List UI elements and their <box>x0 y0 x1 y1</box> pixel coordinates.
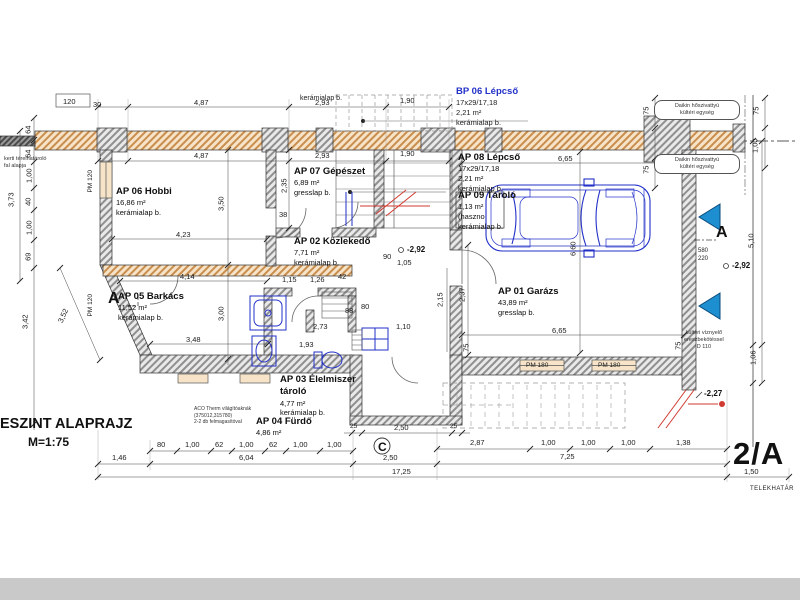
dim-label: 3,00 <box>218 306 226 321</box>
section-arrow-icon <box>699 293 720 319</box>
level-value: -2,27 <box>704 389 722 398</box>
dim-label: 1,15 <box>282 276 297 284</box>
dim-label: 2,50 <box>394 424 409 432</box>
dim-label: 1,00 <box>293 441 308 449</box>
room-name: AP 03 Élelmiszer tároló <box>280 374 370 399</box>
room-area: 2,21 m² <box>458 174 520 184</box>
drain-dot <box>719 401 725 407</box>
room-floor: kerámialap b. <box>118 313 184 323</box>
room-label-ap02: AP 02 Közlekedő 7,71 m² kerámialap b. <box>294 236 370 268</box>
drawing-title: ESZINT ALAPRAJZ <box>0 416 132 432</box>
dim-label: 1,00 <box>185 441 200 449</box>
dim-label: 80 <box>157 441 165 449</box>
room-label-ap09: AP 09 Tároló 1,13 m² (haszno kerámialap … <box>458 190 516 232</box>
note-daikin-1: Daikin hőszivattyú kültéri egység <box>654 100 740 120</box>
section-letter-a-left: A <box>108 290 120 308</box>
stair-bp06 <box>336 95 452 131</box>
dim-label: 3,42 <box>22 314 30 329</box>
dim-label: 75 <box>752 107 760 115</box>
room-area: 43,89 m² <box>498 298 559 308</box>
dim-label: 1,38 <box>676 439 691 447</box>
window-marker: PM 180 <box>526 363 548 370</box>
bottom-edge-strip <box>0 578 800 600</box>
section-letter-a-right: A <box>716 224 728 242</box>
dim-label: 4,87 <box>194 99 209 107</box>
dim-label: 25 <box>350 424 357 431</box>
dim-label: 2,73 <box>313 323 328 331</box>
room-label-ap05: AP 05 Barkács 11,52 m² kerámialap b. <box>118 291 184 323</box>
dim-label: 2,15 <box>437 292 445 307</box>
dim-label: 42 <box>338 273 346 281</box>
dim-label: 1,00 <box>541 439 556 447</box>
room-name: AP 05 Barkács <box>118 291 184 303</box>
dim-label: 25 <box>450 424 457 431</box>
dim-label: 1,00 <box>752 138 760 153</box>
level-value: -2,92 <box>407 245 425 254</box>
boundary-label: TELEKHATÁR <box>750 486 794 492</box>
dim-label: 3,73 <box>8 192 16 207</box>
dim-label: 7,25 <box>560 453 575 461</box>
dim-label: 30 <box>93 101 101 109</box>
dim-label: 2,93 <box>315 99 330 107</box>
dim-label: 580 <box>698 248 708 254</box>
room-note: (haszno <box>458 212 516 222</box>
room-name: AP 08 Lépcső <box>458 152 520 164</box>
dim-label: 1,06 <box>750 350 758 365</box>
dim-label: 75 <box>674 342 682 350</box>
dim-label: 75 <box>642 107 650 115</box>
room-label-ap08: AP 08 Lépcső 17x29/17,18 2,21 m² kerámia… <box>458 152 520 194</box>
dim-label: 2,93 <box>315 152 330 160</box>
note-drain: kültéri víznyelő ereszbekötéssel D 110 <box>684 330 724 351</box>
dim-label: 64 <box>24 126 32 134</box>
dim-label: 2,35 <box>281 178 289 193</box>
room-name: AP 09 Tároló <box>458 190 516 202</box>
dim-label: 88 <box>345 307 353 315</box>
dim-label: 69 <box>24 253 32 261</box>
room-area: 7,71 m² <box>294 248 370 258</box>
dim-label: 6,65 <box>558 155 573 163</box>
room-floor: kerámialap b. <box>456 118 518 128</box>
dim-label: 4,14 <box>180 273 195 281</box>
window-marker: PM 120 <box>88 294 95 316</box>
room-name: AP 01 Garázs <box>498 286 559 298</box>
dim-label: 220 <box>698 256 708 262</box>
exterior-stair <box>443 383 625 428</box>
room-area: 11,52 m² <box>118 303 184 313</box>
room-steps: 17x29/17,18 <box>456 98 518 108</box>
dim-label: 5,10 <box>748 233 756 248</box>
room-area: 4,86 m² <box>256 428 312 438</box>
room-floor: gresslap b. <box>498 308 559 318</box>
window-marker: PM 120 <box>88 170 95 192</box>
room-label-bp06: BP 06 Lépcső 17x29/17,18 2,21 m² kerámia… <box>456 86 518 128</box>
room-floor: kerámialap b. <box>116 208 172 218</box>
dim-label: 6,04 <box>239 454 254 462</box>
dim-label: 90 <box>383 253 391 261</box>
dim-label: 1,00 <box>621 439 636 447</box>
dim-label: 1,05 <box>397 259 412 267</box>
room-name: AP 04 Fürdő <box>256 416 312 428</box>
dim-label: 1,90 <box>400 150 415 158</box>
room-floor: kerámialap b. <box>458 222 516 232</box>
room-area: 4,77 m² <box>280 399 370 409</box>
dim-label: 2,87 <box>470 439 485 447</box>
note-garden-wall: kerti térelhatároló fal alapja <box>4 156 47 170</box>
window-marker: PM 180 <box>598 363 620 370</box>
dim-label: 2,50 <box>383 454 398 462</box>
dim-label: 1,00 <box>26 220 34 235</box>
dim-label: 1,46 <box>112 454 127 462</box>
level-marker <box>399 248 404 253</box>
dim-label: 120 <box>63 98 76 106</box>
level-marker <box>724 264 729 269</box>
dim-label: 1,00 <box>327 441 342 449</box>
room-label-ap06: AP 06 Hobbi 16,86 m² kerámialap b. <box>116 186 172 218</box>
dim-label: 3,50 <box>218 196 226 211</box>
room-area: 6,89 m² <box>294 178 365 188</box>
dim-label: 2,37 <box>459 287 467 302</box>
section-letter-c: C <box>378 440 387 454</box>
note-aco: ACO Therm világítóaknák (375012,315780) … <box>194 406 251 426</box>
dim-label: 75 <box>642 166 650 174</box>
dim-label: 3,48 <box>186 336 201 344</box>
dim-label: 1,00 <box>239 441 254 449</box>
room-label-ap04: AP 04 Fürdő 4,86 m² <box>256 416 312 438</box>
dim-label: 4,23 <box>176 231 191 239</box>
room-floor: gresslap b. <box>294 188 365 198</box>
sheet-code: 2/A <box>733 436 784 472</box>
room-name: AP 02 Közlekedő <box>294 236 370 248</box>
room-area: 1,13 m² <box>458 202 516 212</box>
dim-label: 1,00 <box>26 168 34 183</box>
room-area: 2,21 m² <box>456 108 518 118</box>
room-name: AP 06 Hobbi <box>116 186 172 198</box>
dim-label: 1,00 <box>581 439 596 447</box>
dim-label: 1,90 <box>400 97 415 105</box>
room-label-ap01: AP 01 Garázs 43,89 m² gresslap b. <box>498 286 559 318</box>
room-label-ap03: AP 03 Élelmiszer tároló 4,77 m² kerámial… <box>280 374 370 418</box>
dim-label: 1,10 <box>396 323 411 331</box>
dim-label: 1,93 <box>299 341 314 349</box>
room-floor: kerámialap b. <box>294 258 370 268</box>
room-label-ap07: AP 07 Gépészet 6,89 m² gresslap b. <box>294 166 365 198</box>
dim-label: 62 <box>269 441 277 449</box>
dim-label: 75 <box>462 344 470 352</box>
room-area: 16,86 m² <box>116 198 172 208</box>
dim-label: 6,60 <box>570 241 578 256</box>
dim-label: 62 <box>215 441 223 449</box>
dim-label: 40 <box>24 198 32 206</box>
note-daikin-2: Daikin hőszivattyú kültéri egység <box>654 154 740 174</box>
dim-label: 38 <box>279 211 287 219</box>
dim-label: 4,87 <box>194 152 209 160</box>
floor-plan-canvas: AP 06 Hobbi 16,86 m² kerámialap b. AP 07… <box>0 0 800 600</box>
room-name: AP 07 Gépészet <box>294 166 365 178</box>
dim-label: 80 <box>361 303 369 311</box>
drawing-scale: M=1:75 <box>28 435 69 449</box>
dim-label: 17,25 <box>392 468 411 476</box>
dim-label: 1,26 <box>310 276 325 284</box>
room-steps: 17x29/17,18 <box>458 164 520 174</box>
dim-label: 6,65 <box>552 327 567 335</box>
level-value: -2,92 <box>732 261 750 270</box>
room-name: BP 06 Lépcső <box>456 86 518 98</box>
